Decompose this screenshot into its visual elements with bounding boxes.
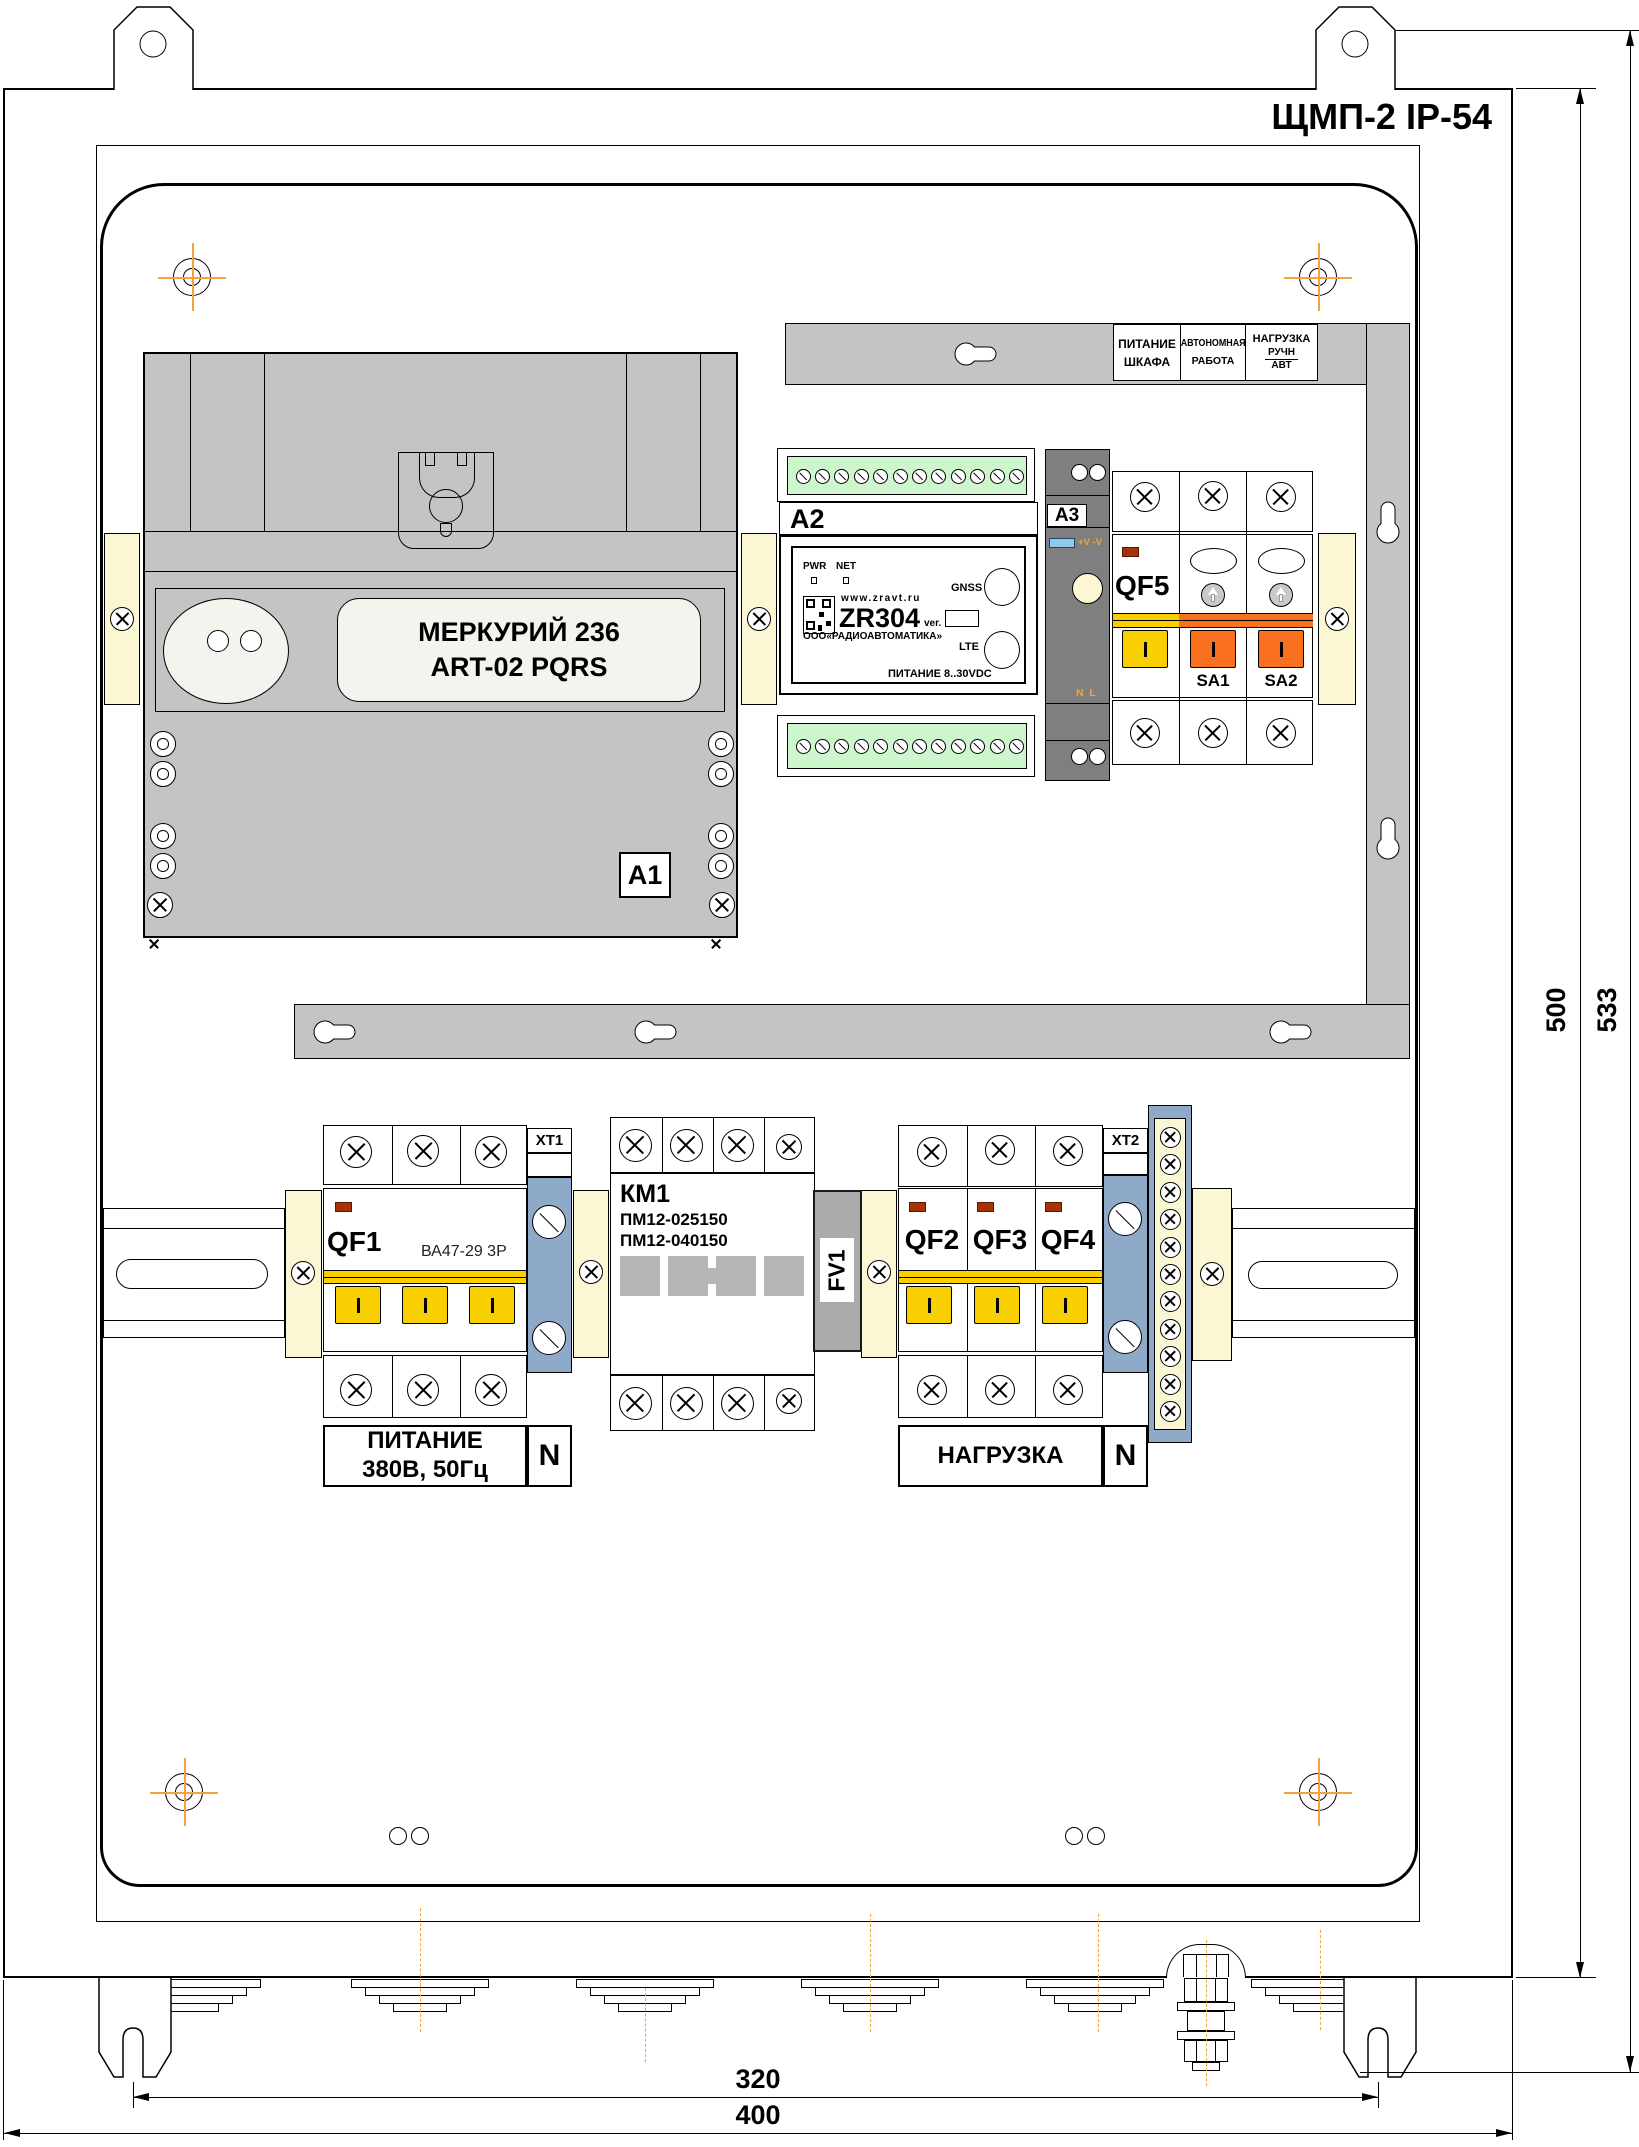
screw-icon	[1266, 718, 1296, 748]
indicator-panel: ПИТАНИЕ ШКАФА АВТОНОМНАЯ РАБОТА НАГРУЗКА…	[1113, 324, 1318, 381]
screw-icon	[1198, 718, 1228, 748]
screw-icon	[150, 823, 176, 849]
screw-icon	[834, 739, 849, 754]
screw-icon	[1325, 607, 1349, 631]
screw-icon	[776, 1388, 802, 1414]
screw-icon	[1160, 1291, 1181, 1312]
fv1-label: FV1	[824, 1249, 851, 1291]
screw-icon	[1089, 464, 1106, 481]
cable-gland-icon	[165, 2003, 219, 2012]
qf2-toggle	[906, 1286, 952, 1324]
screw-icon	[854, 739, 869, 754]
meter-tag-label: А1	[619, 852, 671, 898]
screw-icon	[1130, 718, 1160, 748]
screw-icon	[150, 853, 176, 879]
screw-icon	[1266, 482, 1296, 512]
screw-icon	[619, 1129, 652, 1162]
screw-icon	[1071, 748, 1088, 765]
a3-adjust-pot	[1072, 573, 1103, 604]
screw-icon	[776, 1134, 802, 1160]
km1-contact-pad	[764, 1256, 804, 1296]
dim-height-inner: 500	[1541, 980, 1571, 1040]
screw-icon	[411, 1827, 429, 1845]
screw-icon	[340, 1136, 372, 1168]
screw-icon	[1160, 1209, 1181, 1230]
screw-icon	[340, 1374, 372, 1406]
screw-icon	[893, 739, 908, 754]
screw-icon	[815, 469, 830, 484]
qf5-band	[1113, 613, 1179, 628]
screw-icon	[708, 731, 734, 757]
qf1-toggle	[402, 1286, 448, 1324]
screw-icon	[1198, 481, 1228, 511]
xt2-label-box: ХТ2	[1103, 1128, 1148, 1153]
cable-gland-icon	[1026, 1979, 1164, 1988]
screw-icon	[917, 1137, 947, 1167]
screw-icon	[1160, 1401, 1181, 1422]
a3-led-icon	[1049, 538, 1075, 548]
screw-icon	[796, 469, 811, 484]
plate-screw-icon	[165, 1773, 203, 1811]
neutral-label-box: N	[1103, 1425, 1148, 1487]
screw-icon	[873, 469, 888, 484]
mounting-foot-icon	[1343, 1978, 1417, 2082]
screw-icon	[951, 739, 966, 754]
qf4-indicator	[1045, 1202, 1062, 1212]
screw-icon	[291, 1261, 315, 1285]
screw-icon	[1071, 464, 1088, 481]
fv1-module-body: FV1	[813, 1190, 862, 1352]
screw-icon	[475, 1136, 507, 1168]
mounting-lug-icon	[1315, 6, 1397, 90]
neutral-label-box: N	[527, 1425, 572, 1487]
km1-contact-pad	[668, 1256, 708, 1296]
mounting-foot-icon	[98, 1978, 172, 2082]
screw-icon	[1160, 1374, 1181, 1395]
screw-icon	[207, 630, 229, 652]
qf4-label: QF4	[1034, 1224, 1102, 1256]
screw-icon	[867, 1260, 891, 1284]
screw-icon	[708, 823, 734, 849]
xt1-label-box: ХТ1	[527, 1128, 572, 1153]
screw-icon	[985, 1135, 1015, 1165]
supply-caption: ПИТАНИЕ 380В, 50Гц	[323, 1425, 527, 1487]
a2-model-label: ZR304	[839, 603, 920, 634]
qf1-toggle	[335, 1286, 381, 1324]
screw-icon	[1160, 1319, 1181, 1340]
meter-seal-latch-icon	[398, 452, 494, 549]
screw-icon	[1108, 1320, 1142, 1354]
screw-icon	[532, 1205, 566, 1239]
qf5-indicator	[1122, 547, 1139, 557]
qf3-toggle	[974, 1286, 1020, 1324]
qf1-toggle	[469, 1286, 515, 1324]
selector-screw-icon	[1269, 583, 1293, 607]
right-bracket-bar	[1366, 323, 1410, 1059]
screw-icon	[1108, 1202, 1142, 1236]
x-mark-icon	[146, 936, 162, 952]
sa2-toggle	[1258, 630, 1304, 668]
qf3-indicator	[977, 1202, 994, 1212]
screw-icon	[990, 469, 1005, 484]
qf5-label: QF5	[1115, 570, 1169, 602]
km1-type1-label: ПМ12-025150	[620, 1210, 728, 1230]
sa2-oval-hole	[1258, 548, 1305, 574]
keyhole-slot-icon	[953, 341, 999, 367]
qf4-toggle	[1042, 1286, 1088, 1324]
net-led-icon	[843, 577, 849, 584]
screw-icon	[1009, 469, 1024, 484]
qr-code-icon	[803, 596, 835, 634]
xt2-spacer	[1103, 1153, 1148, 1175]
sa2-label: SA2	[1258, 671, 1304, 691]
sa1-label: SA1	[1190, 671, 1236, 691]
screw-icon	[834, 469, 849, 484]
screw-icon	[985, 1375, 1015, 1405]
dim-width-outer: 400	[720, 2100, 796, 2131]
screw-icon	[970, 469, 985, 484]
sa1-toggle	[1190, 630, 1236, 668]
keyhole-slot-icon	[1375, 499, 1401, 545]
screw-icon	[917, 1375, 947, 1405]
qf1-type-label: ВА47-29 3Р	[421, 1243, 507, 1261]
plate-screw-icon	[1299, 1773, 1337, 1811]
screw-icon	[815, 739, 830, 754]
cable-gland-icon	[1054, 1995, 1136, 2004]
screw-icon	[670, 1387, 703, 1420]
dim-width-inner: 320	[720, 2064, 796, 2095]
pwr-led-icon	[811, 577, 817, 584]
lte-connector-icon	[984, 631, 1020, 669]
mounting-lug-icon	[113, 6, 195, 90]
meter-optical-port	[163, 598, 289, 704]
qf1-indicator	[335, 1202, 352, 1212]
screw-icon	[1160, 1154, 1181, 1175]
a2-ver-label: ver.	[924, 618, 941, 629]
lte-port-label: LTE	[959, 641, 979, 653]
screw-icon	[721, 1387, 754, 1420]
sa-band	[1179, 613, 1313, 628]
km1-type2-label: ПМ12-040150	[620, 1231, 728, 1251]
screw-icon	[931, 739, 946, 754]
screw-icon	[532, 1321, 566, 1355]
plate-screw-icon	[1299, 258, 1337, 296]
screw-icon	[240, 630, 262, 652]
sa1-oval-hole	[1190, 548, 1237, 574]
screw-icon	[1053, 1136, 1083, 1166]
screw-icon	[990, 739, 1005, 754]
screw-icon	[854, 469, 869, 484]
screw-icon	[1065, 1827, 1083, 1845]
indicator-cell-load: НАГРУЗКА РУЧН АВТ	[1246, 325, 1317, 380]
screw-icon	[1130, 482, 1160, 512]
screw-icon	[1160, 1237, 1181, 1258]
screw-icon	[709, 892, 735, 918]
selector-screw-icon	[1201, 583, 1225, 607]
bottom-bracket-bar	[294, 1004, 1410, 1059]
km1-contact-pad	[620, 1256, 660, 1296]
din-rail	[1232, 1208, 1415, 1338]
screw-icon	[110, 607, 134, 631]
qf5-toggle	[1122, 630, 1168, 668]
dim-height-outer: 533	[1592, 980, 1622, 1040]
a3-tag-label: A3	[1047, 504, 1087, 527]
screw-icon	[873, 739, 888, 754]
screw-icon	[912, 469, 927, 484]
screw-icon	[1160, 1346, 1181, 1367]
screw-icon	[970, 739, 985, 754]
screw-icon	[1200, 1262, 1224, 1286]
screw-icon	[475, 1374, 507, 1406]
page-title: ЩМП-2 IP-54	[1180, 96, 1492, 138]
qf234-band	[899, 1270, 1102, 1284]
screw-icon	[1160, 1182, 1181, 1203]
a2-ver-box	[945, 610, 979, 627]
screw-icon	[670, 1129, 703, 1162]
screw-icon	[1089, 748, 1106, 765]
screw-icon	[951, 469, 966, 484]
keyhole-slot-icon	[633, 1019, 679, 1045]
screw-icon	[747, 607, 771, 631]
a2-net-led-label: NET	[836, 561, 856, 572]
screw-icon	[1160, 1264, 1181, 1285]
drawing-canvas: ЩМП-2 IP-54 ПИТАНИЕ ШКАФА АВТОНОМНАЯ РАБ…	[0, 0, 1639, 2147]
keyhole-slot-icon	[1375, 815, 1401, 861]
screw-icon	[579, 1260, 603, 1284]
screw-icon	[721, 1129, 754, 1162]
screw-icon	[893, 469, 908, 484]
screw-icon	[1053, 1375, 1083, 1405]
screw-icon	[147, 892, 173, 918]
screw-icon	[619, 1387, 652, 1420]
xt1-spacer	[527, 1153, 572, 1177]
km1-label: КМ1	[620, 1180, 670, 1209]
screw-icon	[1087, 1827, 1105, 1845]
a2-power-label: ПИТАНИЕ 8..30VDC	[888, 668, 992, 680]
screw-icon	[1009, 739, 1024, 754]
screw-icon	[708, 853, 734, 879]
a3-led-label: +V -V	[1078, 537, 1102, 548]
gnss-port-label: GNSS	[951, 582, 982, 594]
qf3-label: QF3	[966, 1224, 1034, 1256]
screw-icon	[407, 1135, 439, 1167]
screw-icon	[150, 731, 176, 757]
gnss-connector-icon	[984, 568, 1020, 606]
keyhole-slot-icon	[312, 1019, 358, 1045]
screw-icon	[150, 761, 176, 787]
qf2-indicator	[909, 1202, 926, 1212]
a3-module-body	[1045, 449, 1110, 781]
plate-screw-icon	[173, 258, 211, 296]
x-mark-icon	[708, 936, 724, 952]
qf2-label: QF2	[898, 1224, 966, 1256]
load-caption: НАГРУЗКА	[898, 1425, 1103, 1487]
meter-name: МЕРКУРИЙ 236 ART-02 PQRS	[337, 598, 701, 702]
screw-icon	[389, 1827, 407, 1845]
a2-pwr-led-label: PWR	[803, 561, 826, 572]
qf1-label: QF1	[327, 1226, 381, 1258]
qf1-band	[324, 1270, 526, 1284]
screw-icon	[708, 761, 734, 787]
km1-contact-pad	[716, 1256, 756, 1296]
cable-gland-icon	[1040, 1987, 1150, 1996]
a2-mfr-label: ООО«РАДИОАВТОМАТИКА»	[803, 631, 942, 642]
screw-icon	[407, 1374, 439, 1406]
din-rail	[103, 1208, 285, 1338]
a3-terminal-labels: N L	[1076, 687, 1096, 699]
cable-gland-icon	[576, 1979, 714, 1988]
cable-gland-icon	[1068, 2003, 1122, 2012]
indicator-cell-power: ПИТАНИЕ ШКАФА	[1114, 325, 1180, 380]
a2-tag-label: A2	[790, 504, 825, 535]
screw-icon	[1160, 1127, 1181, 1148]
keyhole-slot-icon	[1268, 1019, 1314, 1045]
screw-icon	[912, 739, 927, 754]
screw-icon	[796, 739, 811, 754]
indicator-cell-autonomous: АВТОНОМНАЯ РАБОТА	[1180, 325, 1246, 380]
screw-icon	[931, 469, 946, 484]
